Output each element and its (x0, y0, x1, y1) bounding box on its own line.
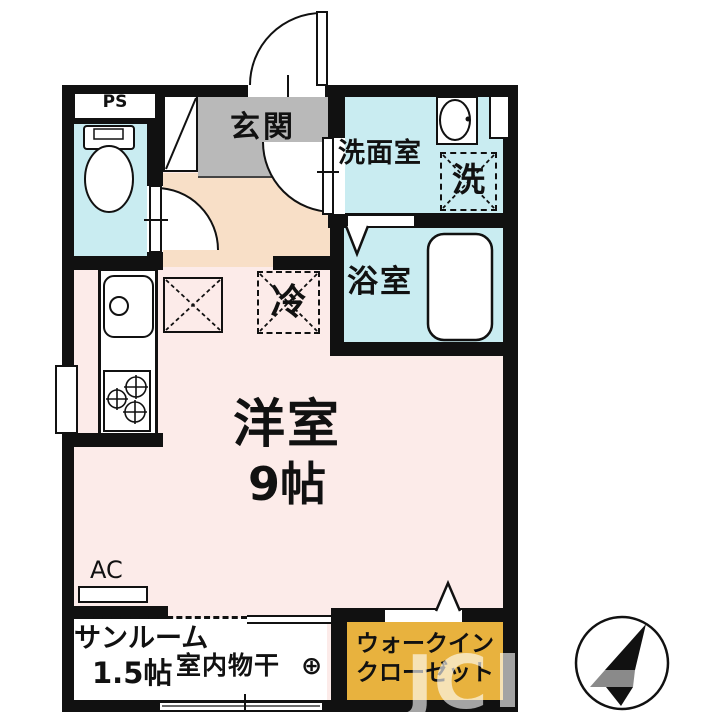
sunroom-label: サンルーム (74, 625, 208, 653)
indoor-drying-label: 室内物干 (176, 653, 280, 679)
sunroom-sliding-opening (247, 615, 331, 624)
compass-icon (576, 617, 668, 709)
sunroom-dashed-boundary (84, 616, 247, 619)
window-sunroom-bottom (160, 701, 322, 712)
floor-plan: PS 玄関 洗面室 洗 浴室 冷 洋室 9帖 AC サンルーム 1.5帖 室内物… (0, 0, 720, 720)
sunroom-size: 1.5帖 (92, 658, 172, 688)
wall-wic-left (331, 608, 347, 712)
kitchen-counter (98, 268, 158, 436)
watermark-partial-letter (500, 653, 515, 707)
wall-bath-bottom (330, 342, 518, 356)
main-room-size: 9帖 (228, 460, 346, 508)
entrance-label: 玄関 (198, 112, 328, 144)
refrigerator-label: 冷 (257, 284, 320, 322)
washroom-door-tick (317, 171, 339, 173)
kitchen-free-space-box (163, 277, 223, 333)
window-left-wall (55, 365, 78, 434)
indoor-drying-symbol: ⊕ (301, 653, 322, 679)
window-washroom-right (489, 95, 510, 139)
watermark-text: JC (406, 646, 488, 720)
ps-label: PS (73, 94, 157, 112)
bathroom-label: 浴室 (340, 266, 420, 299)
main-room-label: 洋室 (228, 398, 346, 453)
bath-door-threshold (348, 216, 414, 226)
toilet-floor (74, 122, 147, 258)
wic-door-threshold (385, 610, 462, 622)
ac-unit (78, 586, 148, 603)
laundry-label: 洗 (440, 163, 497, 198)
toilet-door-tick (144, 219, 168, 221)
entrance-hinge-tick (287, 75, 289, 97)
shoe-cabinet (163, 95, 198, 172)
hallway-floor (163, 173, 331, 267)
ac-label: AC (90, 558, 123, 583)
wall-hall-main-stub (273, 256, 344, 270)
washroom-label: 洗面室 (338, 140, 422, 168)
